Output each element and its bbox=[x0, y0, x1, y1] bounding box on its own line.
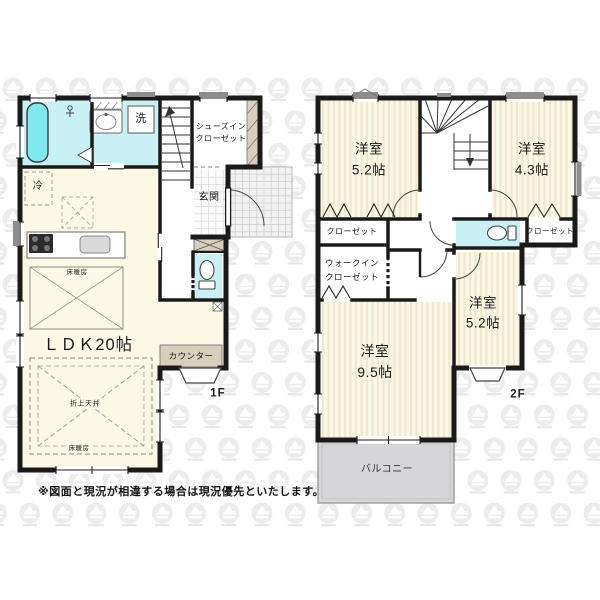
room-tl-name: 洋室 bbox=[355, 142, 383, 156]
room-mr-size: 5.2帖 bbox=[466, 316, 500, 330]
floorplan-canvas bbox=[0, 0, 600, 600]
bay-window-2f bbox=[470, 368, 505, 381]
kitchen-sink bbox=[80, 236, 110, 253]
kitchen-counter bbox=[27, 232, 125, 258]
toilet2f-fixture bbox=[488, 226, 517, 240]
bathtub bbox=[27, 103, 48, 162]
room-tr-name: 洋室 bbox=[518, 142, 546, 156]
hall-storage bbox=[194, 239, 225, 251]
footnote: ※図面と現況が相違する場合は現況優先といたします。 bbox=[38, 483, 324, 499]
bay-window-1f bbox=[179, 368, 221, 383]
wic-label-1: ウォークイン bbox=[325, 259, 379, 268]
floor-heating-label-top: 床暖房 bbox=[66, 270, 89, 277]
room-mr-name: 洋室 bbox=[469, 296, 497, 310]
closet-left-label: クローゼット bbox=[327, 228, 378, 236]
washbasin bbox=[90, 110, 122, 133]
floor-heating-label-bottom: 床暖房 bbox=[68, 446, 91, 453]
room-bl-size: 9.5帖 bbox=[357, 365, 392, 379]
ldk-label: ＬＤＫ20帖 bbox=[43, 337, 133, 354]
room-tr-size: 4.3帖 bbox=[515, 163, 549, 177]
fridge-label: 冷 bbox=[33, 182, 44, 192]
room-tl-size: 5.2帖 bbox=[352, 163, 386, 177]
counter-label: カウンター bbox=[168, 352, 213, 361]
entrance-label: 玄関 bbox=[199, 193, 220, 203]
shaft-box bbox=[213, 302, 222, 311]
floorplan-page: ＬＤＫ20帖 玄関 シューズイン クローゼット 洗 冷 カウンター 床暖房 折上… bbox=[0, 0, 600, 600]
floor1-label: 1F bbox=[210, 388, 225, 400]
sic-shelf bbox=[247, 100, 258, 166]
laundry-label: 洗 bbox=[135, 114, 147, 125]
closet-right-label: クローゼット bbox=[526, 227, 574, 235]
shoes-closet-label-2: クローゼット bbox=[196, 135, 247, 143]
balcony-label: バルコニー bbox=[361, 465, 413, 475]
stove bbox=[29, 234, 53, 253]
genkan-floor bbox=[194, 170, 226, 236]
floor2-label: 2F bbox=[510, 389, 525, 401]
wic-label-2: クローゼット bbox=[325, 273, 379, 282]
shoes-closet-label-1: シューズイン bbox=[196, 123, 247, 131]
washroom-slide-door bbox=[94, 163, 124, 171]
wash-cabinet bbox=[92, 101, 122, 109]
porch-tile bbox=[228, 167, 292, 237]
toilet1f-fixture bbox=[199, 261, 215, 290]
raised-ceiling-label: 折上天井 bbox=[69, 401, 101, 408]
room-bl-name: 洋室 bbox=[361, 344, 390, 358]
